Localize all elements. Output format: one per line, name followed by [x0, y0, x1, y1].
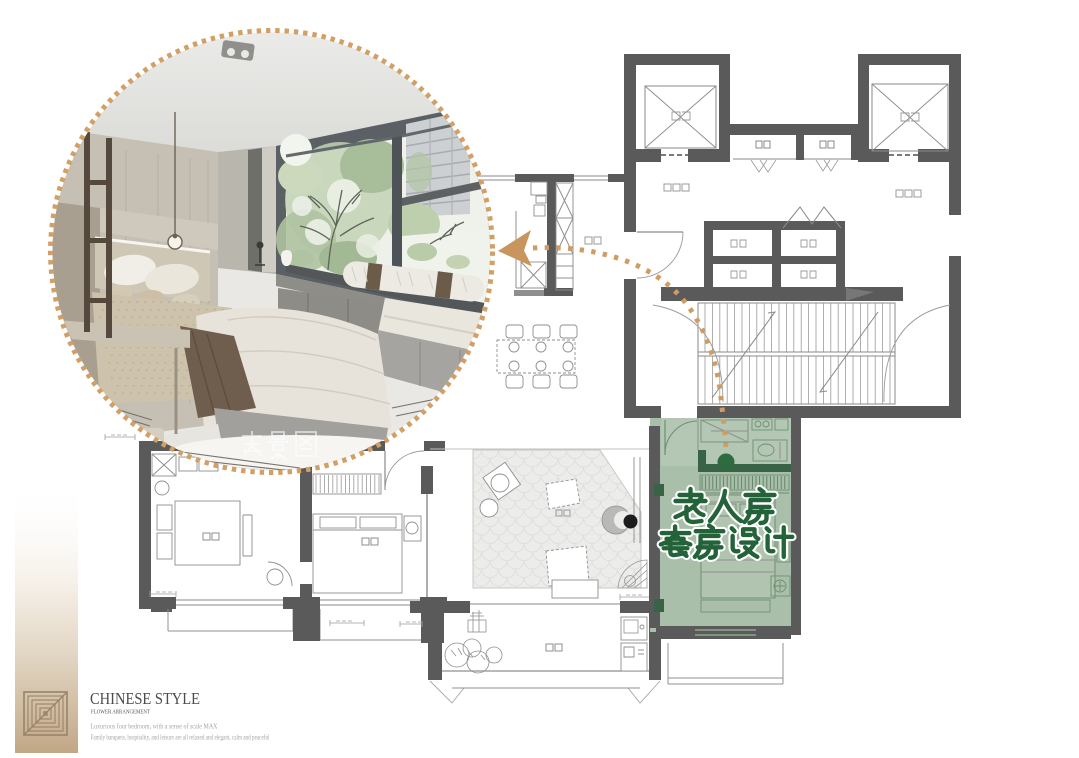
svg-text:Luxurious four bedroom, with a: Luxurious four bedroom, with a sense of …	[91, 722, 218, 731]
svg-text:FLOWER ARRANGEMENT: FLOWER ARRANGEMENT	[91, 710, 150, 716]
svg-text:Family banquets, hospitality,: Family banquets, hospitality, and leisur…	[91, 733, 270, 742]
svg-text:CHINESE STYLE: CHINESE STYLE	[90, 689, 200, 708]
